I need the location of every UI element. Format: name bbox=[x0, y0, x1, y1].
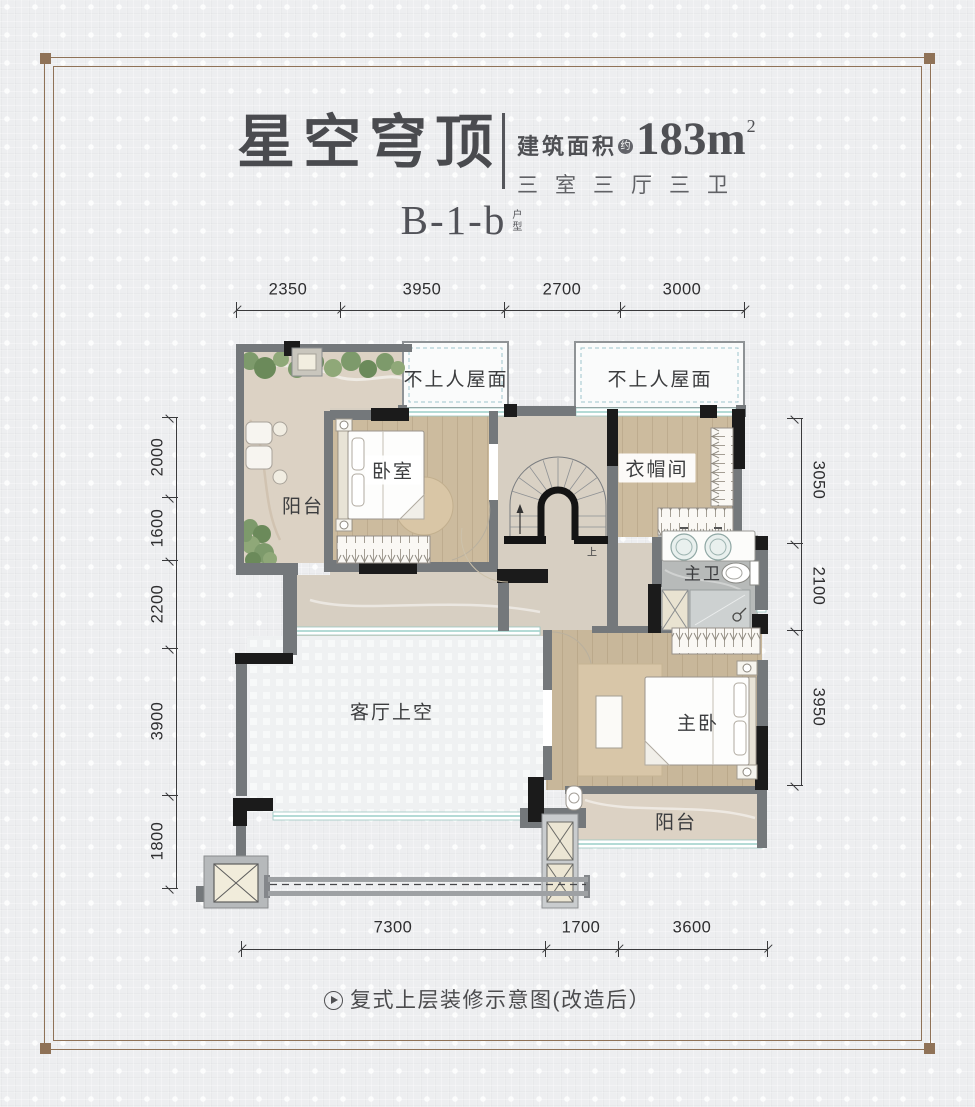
dim-bottom-3: 3600 bbox=[673, 919, 712, 938]
rooms-summary: 三室三厅三卫 bbox=[517, 169, 757, 199]
label-living-void: 客厅上空 bbox=[350, 698, 434, 725]
shower-area bbox=[690, 590, 750, 630]
unit-char: 型 bbox=[512, 222, 522, 233]
unit-char: 户 bbox=[512, 210, 522, 221]
play-circle-icon bbox=[324, 991, 343, 1010]
label-master-bedroom: 主卧 bbox=[677, 709, 719, 736]
dim-right-1: 3050 bbox=[809, 461, 828, 500]
area-label: 建筑面积 bbox=[517, 134, 617, 159]
page-title: 星空穹顶 bbox=[237, 108, 501, 178]
label-bedroom: 卧室 bbox=[365, 456, 421, 485]
approx-circle-icon: 约 bbox=[618, 139, 633, 154]
floor-plan-graphic bbox=[196, 330, 806, 920]
small-basin bbox=[566, 786, 582, 810]
dim-right-2: 2100 bbox=[809, 567, 828, 606]
frame-corner-square bbox=[924, 1043, 935, 1054]
unit-suffix: 户型 bbox=[512, 210, 522, 234]
planter-box bbox=[292, 348, 322, 376]
frame-corner-square bbox=[924, 53, 935, 64]
footer-caption: 复式上层装修示意图(改造后） bbox=[350, 989, 651, 1012]
dim-right-3: 3950 bbox=[809, 688, 828, 727]
area-line: 建筑面积约183m2 bbox=[517, 112, 757, 166]
label-roof-left: 不上人屋面 bbox=[403, 365, 508, 392]
area-superscript: 2 bbox=[747, 116, 756, 136]
area-value: 183m bbox=[636, 113, 746, 165]
bedroom-wardrobe bbox=[337, 536, 430, 563]
label-stairs-up: 上 bbox=[587, 544, 597, 559]
dim-left-5: 1800 bbox=[149, 822, 168, 861]
duct-box-bath bbox=[662, 590, 688, 630]
master-wardrobe bbox=[672, 628, 760, 654]
label-master-bath: 主卫 bbox=[684, 560, 722, 585]
footer-caption-row: 复式上层装修示意图(改造后） bbox=[0, 984, 975, 1014]
dim-left-3: 2200 bbox=[149, 585, 168, 624]
label-cloakroom: 衣帽间 bbox=[618, 454, 695, 483]
area-block: 建筑面积约183m2 三室三厅三卫 bbox=[517, 112, 757, 199]
dim-bottom-1: 7300 bbox=[374, 919, 413, 938]
floorplan-page: 星空穹顶 建筑面积约183m2 三室三厅三卫 B-1-b户型 2350 3950… bbox=[0, 0, 975, 1107]
dim-top-4: 3000 bbox=[663, 281, 702, 300]
unit-row: B-1-b户型 bbox=[0, 196, 975, 244]
label-roof-right: 不上人屋面 bbox=[607, 365, 712, 392]
label-balcony-top: 阳台 bbox=[282, 492, 324, 519]
frame-corner-square bbox=[40, 53, 51, 64]
label-balcony-bottom: 阳台 bbox=[655, 808, 697, 835]
dim-left-4: 3900 bbox=[149, 702, 168, 741]
master-bench bbox=[596, 696, 622, 748]
toilet bbox=[722, 561, 759, 585]
dim-bottom-2: 1700 bbox=[562, 919, 601, 938]
dim-left-2: 1600 bbox=[149, 509, 168, 548]
frame-corner-square bbox=[40, 1043, 51, 1054]
unit-code: B-1-b bbox=[401, 197, 507, 243]
bath-vanity bbox=[662, 528, 755, 561]
title-divider bbox=[502, 113, 505, 189]
elevator-shaft bbox=[204, 856, 268, 908]
dim-left-1: 2000 bbox=[149, 438, 168, 477]
dim-top-1: 2350 bbox=[269, 281, 308, 300]
dim-top-3: 2700 bbox=[543, 281, 582, 300]
terrace-railing bbox=[264, 875, 590, 898]
dim-top-2: 3950 bbox=[403, 281, 442, 300]
